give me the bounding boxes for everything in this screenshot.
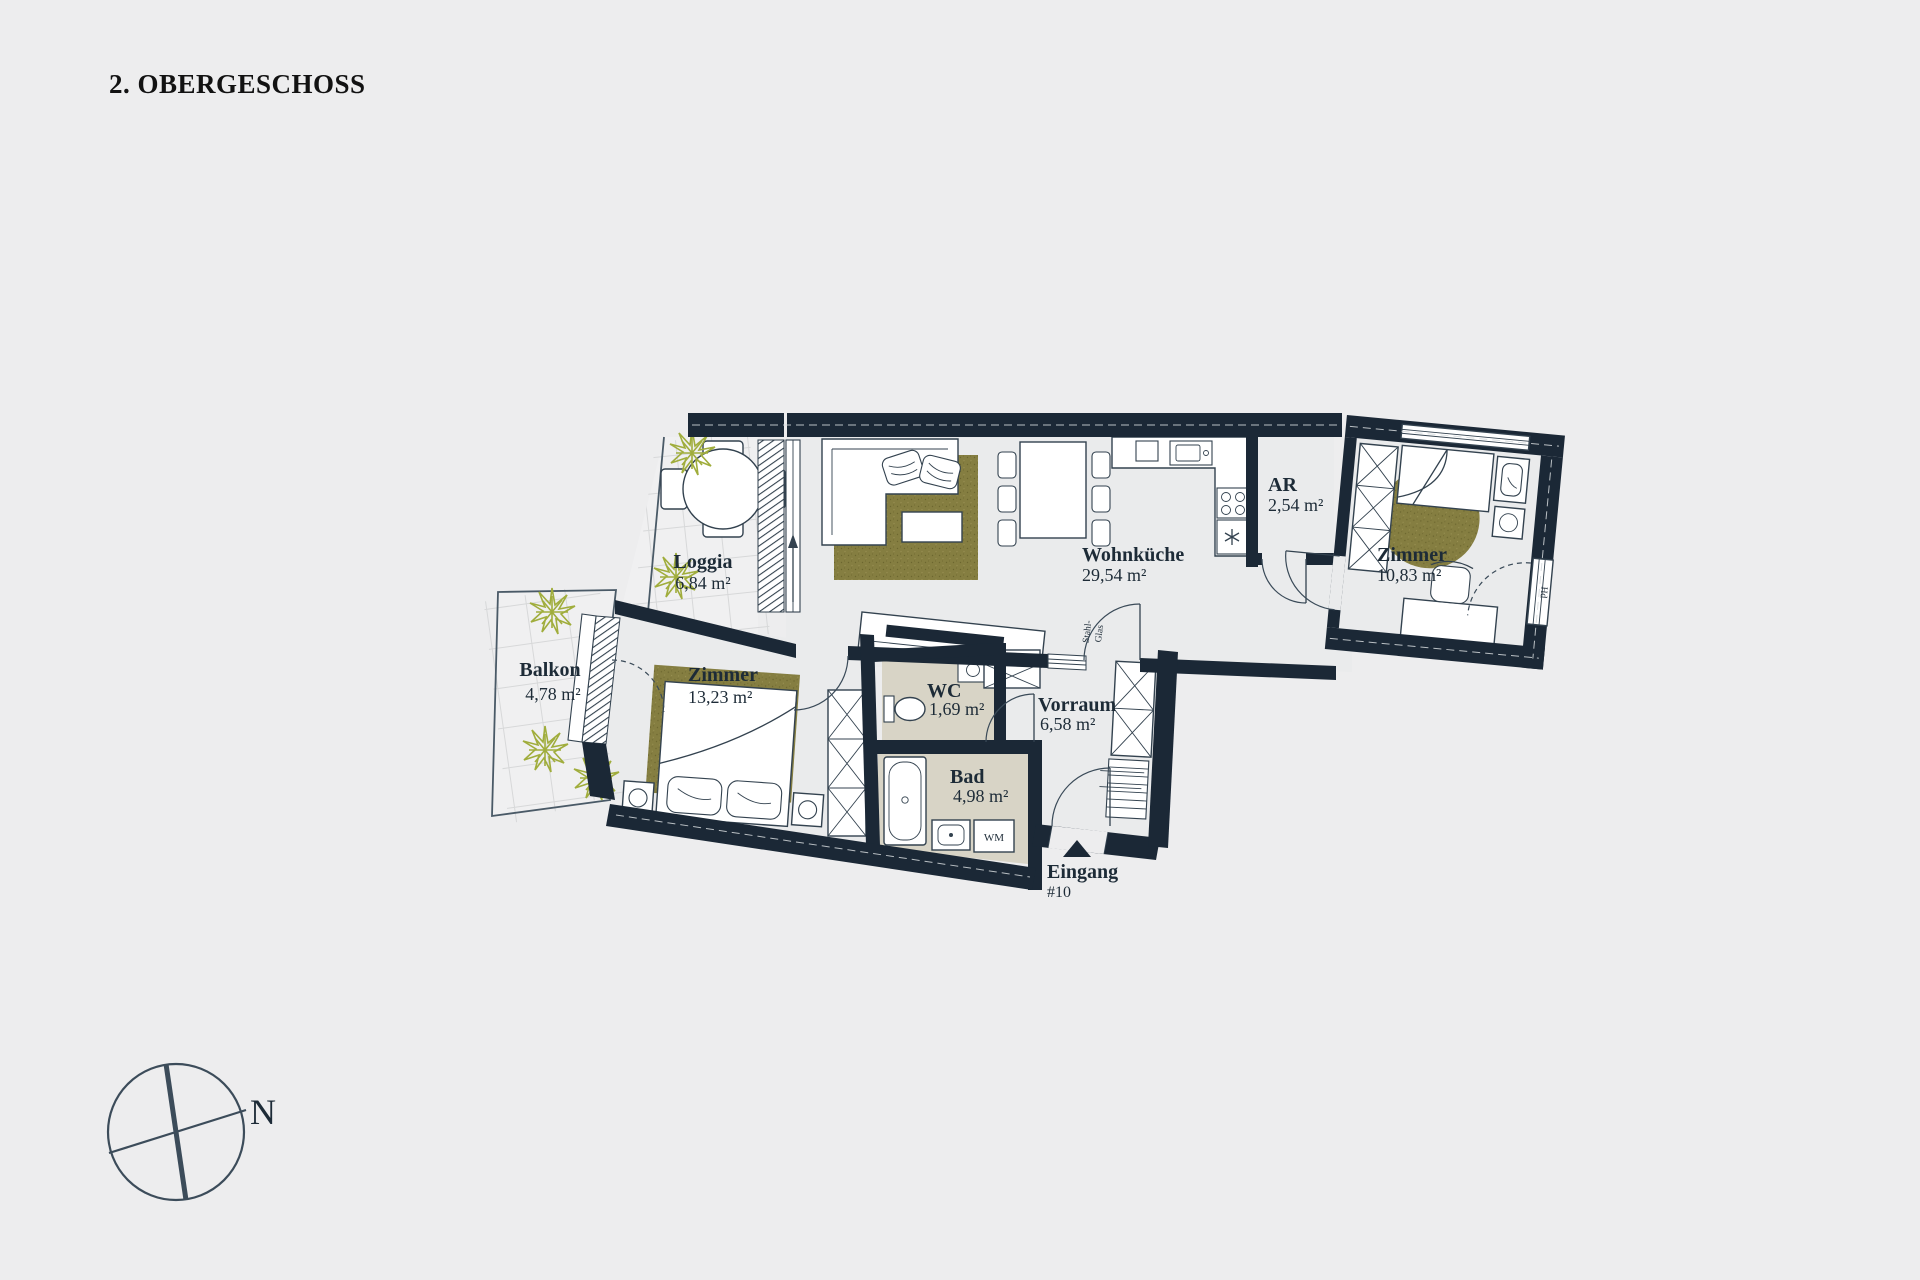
area-bad: 4,98 m²: [953, 786, 1008, 806]
nightstand: [792, 793, 824, 827]
label-zimmer2: Zimmer: [1377, 544, 1447, 566]
side-table: [1492, 506, 1525, 539]
bad-sink: [932, 820, 970, 850]
label-bad: Bad: [950, 766, 984, 788]
wardrobe: [828, 690, 866, 836]
area-ar: 2,54 m²: [1268, 495, 1323, 515]
area-zimmer2: 10,83 m²: [1377, 565, 1441, 585]
label-wohnkueche: Wohnküche: [1082, 544, 1184, 566]
area-zimmer1: 13,23 m²: [688, 687, 752, 707]
wm-label: WM: [984, 832, 1004, 844]
bathtub: [884, 757, 926, 845]
area-balkon: 4,78 m²: [525, 684, 580, 704]
label-balkon: Balkon: [519, 659, 580, 681]
label-unit-number: #10: [1047, 884, 1071, 901]
label-zimmer1: Zimmer: [688, 664, 758, 686]
label-vorraum: Vorraum: [1038, 694, 1116, 716]
toilet-icon: [884, 696, 925, 722]
area-wohnkueche: 29,54 m²: [1082, 565, 1146, 585]
coffee-table: [902, 512, 962, 542]
label-ar: AR: [1268, 474, 1297, 496]
north-label: N: [250, 1092, 276, 1132]
floor-plan: 2. OBERGESCHOSS: [0, 0, 1920, 1280]
wardrobe: [1111, 661, 1156, 757]
compass-icon: N: [108, 1064, 276, 1200]
area-wc: 1,69 m²: [929, 699, 984, 719]
area-loggia: 6,84 m²: [675, 573, 730, 593]
page-title: 2. OBERGESCHOSS: [109, 69, 366, 99]
area-vorraum: 6,58 m²: [1040, 714, 1095, 734]
nightstand: [1494, 456, 1530, 503]
label-eingang: Eingang: [1047, 861, 1118, 883]
single-bed: [1397, 445, 1494, 511]
washing-machine: WM: [974, 820, 1014, 852]
dining-table: [998, 442, 1110, 546]
label-loggia: Loggia: [674, 551, 733, 573]
radiator-label: Hd: [1538, 586, 1549, 599]
